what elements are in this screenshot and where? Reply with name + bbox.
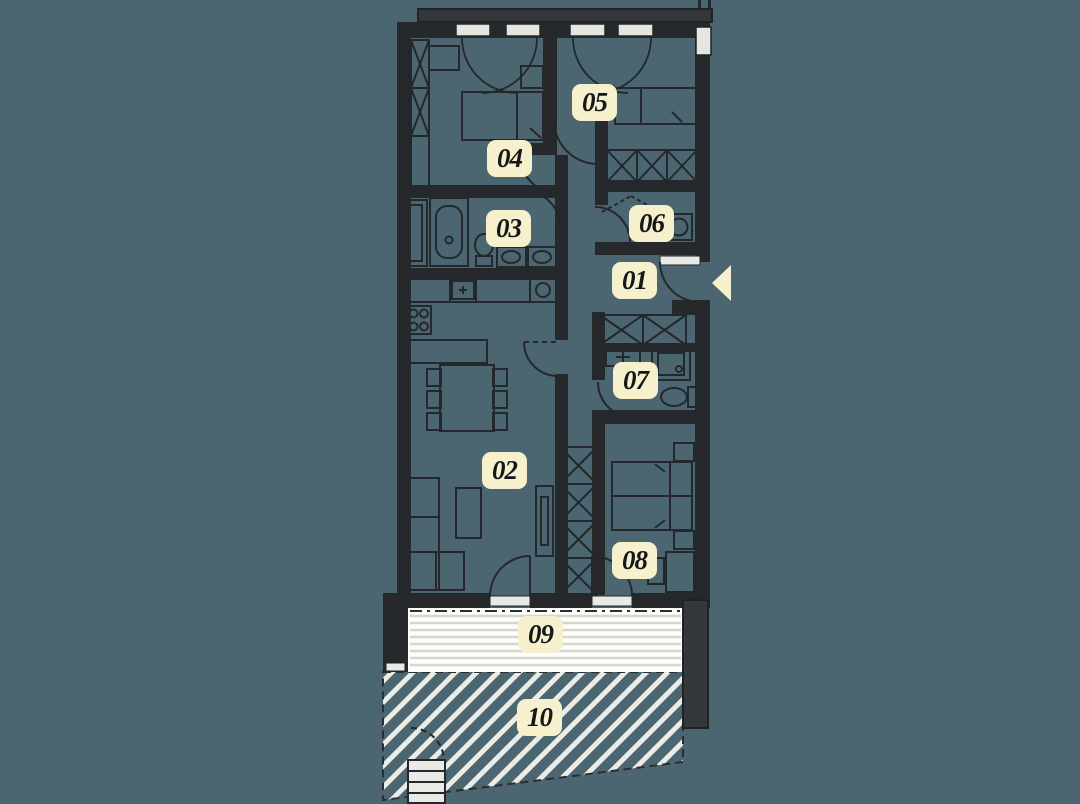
room-label-02: 02	[482, 452, 527, 489]
room-label-08: 08	[612, 542, 657, 579]
floor-plan: 01 02 03 04 05 06 07 08 09 10	[0, 0, 1080, 804]
room-label-09: 09	[518, 616, 563, 653]
room-label-10: 10	[517, 699, 562, 736]
room-label-07: 07	[613, 362, 658, 399]
stairs	[408, 760, 445, 803]
room-label-06: 06	[629, 205, 674, 242]
room-label-03: 03	[486, 210, 531, 247]
room-label-01: 01	[612, 262, 657, 299]
floor-plan-drawing	[0, 0, 1080, 804]
room-label-04: 04	[487, 140, 532, 177]
room-label-05: 05	[572, 84, 617, 121]
